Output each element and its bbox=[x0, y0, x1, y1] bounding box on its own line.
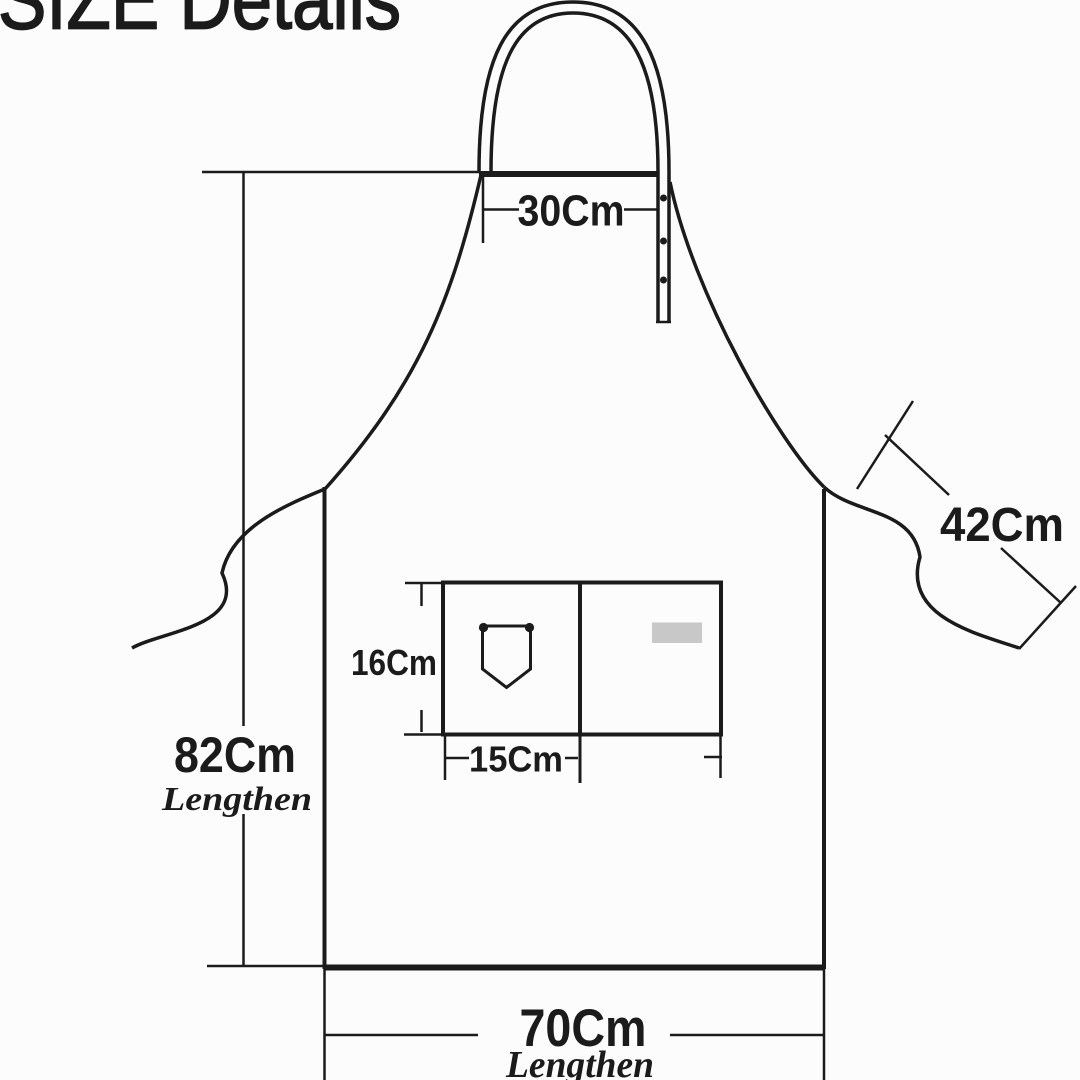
svg-text:Lengthen: Lengthen bbox=[505, 1044, 654, 1080]
svg-text:42Cm: 42Cm bbox=[940, 499, 1064, 552]
svg-text:SIZE Details: SIZE Details bbox=[0, 0, 401, 47]
svg-text:16Cm: 16Cm bbox=[351, 642, 437, 683]
svg-text:82Cm: 82Cm bbox=[174, 727, 296, 783]
svg-text:Lengthen: Lengthen bbox=[161, 781, 312, 818]
svg-text:30Cm: 30Cm bbox=[518, 187, 625, 236]
svg-text:15Cm: 15Cm bbox=[469, 739, 563, 780]
